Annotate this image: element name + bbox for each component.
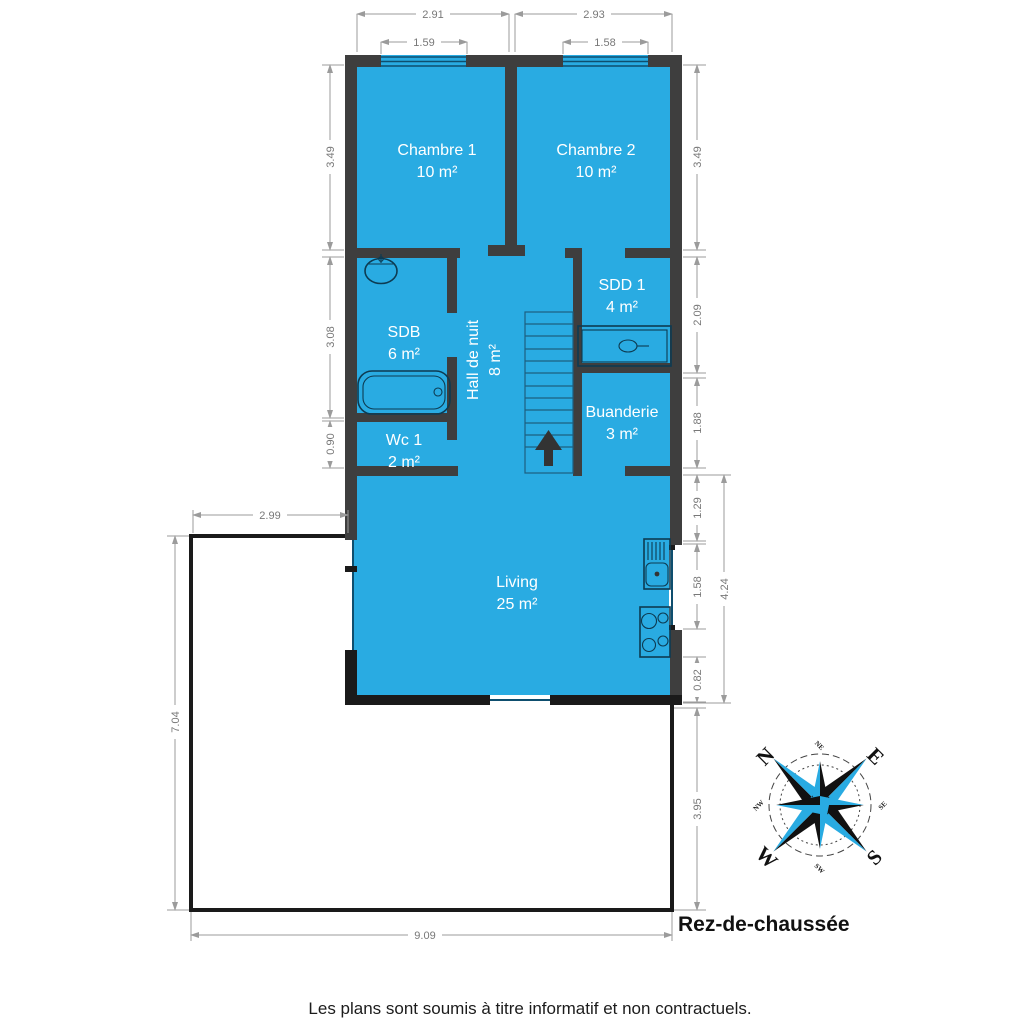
floor-plan-drawing: Chambre 1 10 m² Chambre 2 10 m² SDB 6 m²… — [0, 0, 1024, 1024]
svg-text:0.90: 0.90 — [325, 433, 337, 454]
dimension-right-6: 0.82 — [683, 657, 706, 702]
dimension-right-5: 1.58 — [683, 544, 706, 629]
svg-text:1.59: 1.59 — [413, 37, 434, 49]
svg-text:3.08: 3.08 — [325, 326, 337, 347]
dimension-bottom: 9.09 — [191, 912, 672, 942]
compass-sw-label: SW — [813, 862, 826, 875]
svg-text:1.88: 1.88 — [692, 412, 704, 433]
svg-text:2.99: 2.99 — [259, 510, 280, 522]
door-living-terrace — [669, 545, 683, 630]
compass-nw-label: NW — [752, 799, 766, 813]
svg-text:6 m²: 6 m² — [388, 346, 421, 363]
compass-south-label: S — [862, 845, 887, 870]
svg-text:SDD 1: SDD 1 — [598, 277, 645, 294]
svg-text:Chambre 1: Chambre 1 — [397, 142, 476, 159]
dimension-window-right: 1.58 — [563, 36, 648, 54]
dimension-terrace-left: 7.04 — [167, 536, 189, 910]
svg-text:25 m²: 25 m² — [497, 596, 539, 613]
dimension-terrace-top: 2.99 — [193, 509, 348, 533]
dimension-left-3: 0.90 — [322, 421, 344, 468]
svg-text:Living: Living — [496, 574, 538, 591]
dimension-right-7: 3.95 — [674, 708, 706, 910]
svg-text:3 m²: 3 m² — [606, 426, 639, 443]
dimension-right-1: 3.49 — [683, 65, 706, 250]
svg-text:Wc 1: Wc 1 — [386, 432, 423, 449]
disclaimer-text: Les plans sont soumis à titre informatif… — [308, 999, 751, 1018]
svg-text:10 m²: 10 m² — [417, 164, 459, 181]
svg-text:1.58: 1.58 — [692, 576, 704, 597]
dimension-left-2: 3.08 — [322, 257, 344, 418]
svg-text:1.58: 1.58 — [594, 37, 615, 49]
svg-text:Buanderie: Buanderie — [586, 404, 659, 421]
svg-text:2.09: 2.09 — [692, 304, 704, 325]
svg-text:8 m²: 8 m² — [487, 343, 504, 376]
dimension-window-left: 1.59 — [381, 36, 467, 54]
floor-plan-page: Chambre 1 10 m² Chambre 2 10 m² SDB 6 m²… — [0, 0, 1024, 1024]
svg-text:Chambre 2: Chambre 2 — [556, 142, 635, 159]
svg-text:4.24: 4.24 — [719, 578, 731, 599]
dimension-right-2: 2.09 — [683, 257, 706, 373]
svg-text:Hall de nuit: Hall de nuit — [465, 319, 482, 400]
compass-north-label: N — [751, 742, 779, 770]
compass-rose-icon: N E S W NE SE SW NW — [727, 712, 914, 899]
svg-text:3.49: 3.49 — [325, 146, 337, 167]
dimension-right-3: 1.88 — [683, 378, 706, 468]
svg-text:1.29: 1.29 — [692, 497, 704, 518]
svg-text:0.82: 0.82 — [692, 669, 704, 690]
svg-text:4 m²: 4 m² — [606, 299, 639, 316]
svg-text:9.09: 9.09 — [414, 930, 435, 942]
svg-text:SDB: SDB — [388, 324, 421, 341]
svg-text:2.93: 2.93 — [583, 9, 604, 21]
compass-east-label: E — [862, 743, 889, 770]
svg-text:7.04: 7.04 — [170, 711, 182, 732]
compass-se-label: SE — [877, 800, 889, 812]
window-living-bottom — [490, 695, 550, 705]
floor-title: Rez-de-chaussée — [678, 913, 850, 936]
dimension-left-1: 3.49 — [322, 65, 344, 250]
dimension-right-4: 1.29 — [683, 475, 706, 541]
svg-text:2.91: 2.91 — [422, 9, 443, 21]
svg-text:3.49: 3.49 — [692, 146, 704, 167]
compass-ne-label: NE — [813, 739, 826, 752]
svg-text:10 m²: 10 m² — [576, 164, 618, 181]
svg-text:3.95: 3.95 — [692, 798, 704, 819]
svg-text:2 m²: 2 m² — [388, 454, 421, 471]
